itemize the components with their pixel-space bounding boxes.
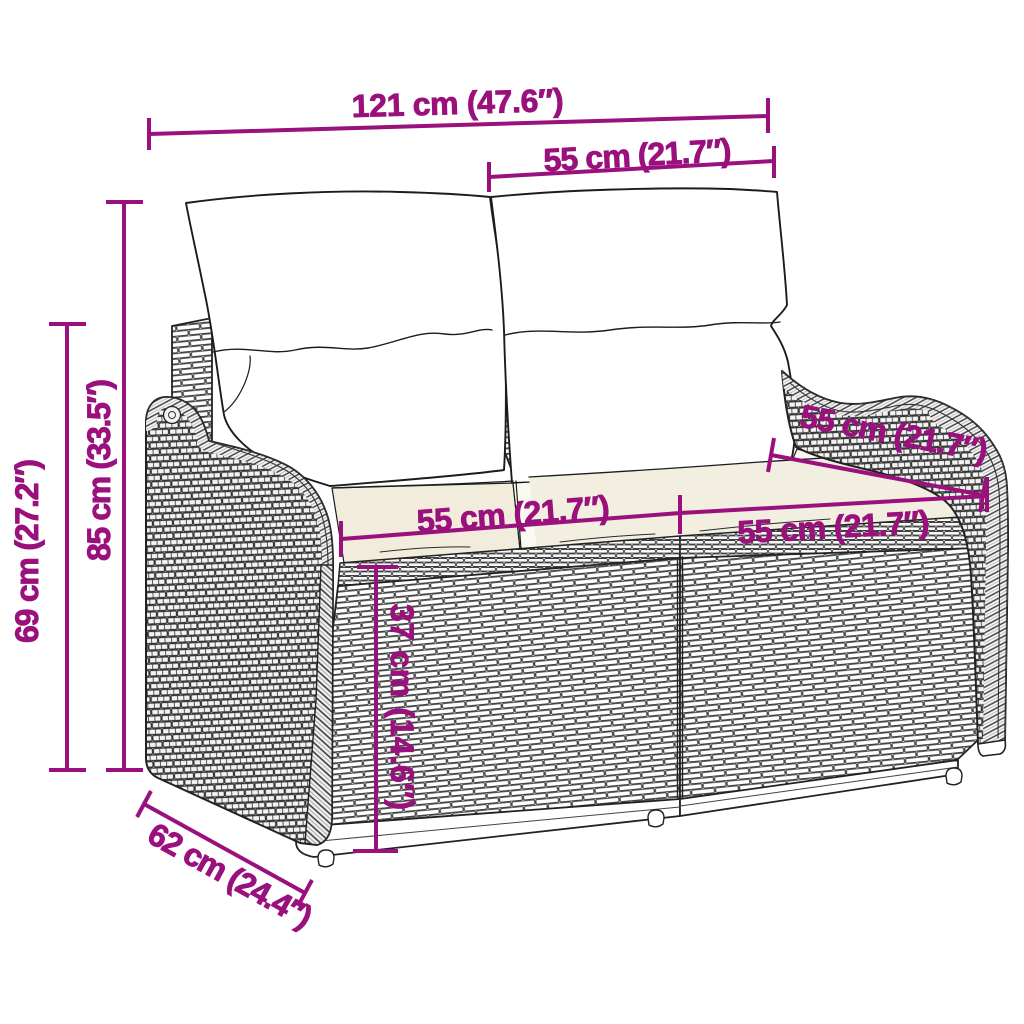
svg-text:69 cm (27.2″): 69 cm (27.2″) [9,459,45,643]
svg-text:37 cm (14.6″): 37 cm (14.6″) [384,604,420,810]
svg-text:121 cm (47.6″): 121 cm (47.6″) [351,82,564,124]
svg-text:85 cm (33.5″): 85 cm (33.5″) [81,379,117,561]
